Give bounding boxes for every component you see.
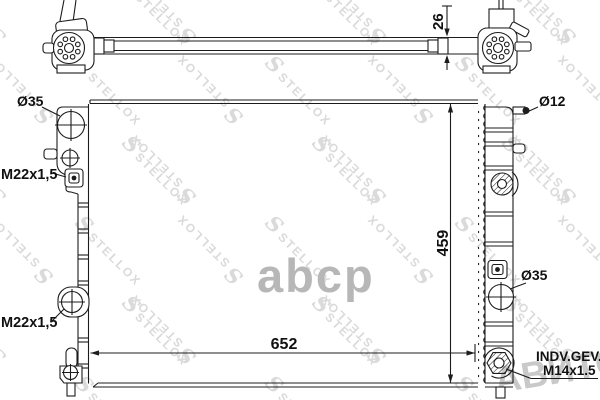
label-vent-diameter: Ø12 bbox=[539, 93, 566, 109]
drain-plug bbox=[485, 348, 514, 378]
label-drain-note-1: INDV.GEV. bbox=[536, 349, 600, 364]
top-view-left-housing bbox=[43, 0, 94, 73]
small-port bbox=[44, 148, 80, 168]
tank-crimp-edge bbox=[478, 105, 486, 383]
right-stub-pipe bbox=[515, 42, 531, 51]
side-stub bbox=[513, 144, 525, 153]
dim-thickness-value: 26 bbox=[430, 13, 447, 30]
dim-height-value: 459 bbox=[435, 230, 452, 257]
technical-drawing: 26 bbox=[0, 0, 600, 400]
threaded-plug bbox=[491, 172, 518, 196]
dim-width-value: 652 bbox=[271, 336, 298, 353]
dim-core-width: 652 bbox=[91, 336, 476, 362]
label-thread-top: M22x1,5 bbox=[1, 167, 57, 183]
left-stub-pipe bbox=[43, 43, 54, 53]
radiator-top-view: 26 bbox=[43, 0, 531, 73]
label-thread-bottom: M22x1,5 bbox=[1, 315, 57, 331]
radiator-front-view: 652 459 Ø35 M22x1,5 M22x1, bbox=[1, 93, 600, 398]
radiator-technical-drawing: SSTELLOXSSTELLOXSSTELLOXSSTELLOXSSTELLOX… bbox=[0, 0, 600, 400]
outlet-port bbox=[486, 282, 516, 312]
left-tank-rungs bbox=[78, 203, 89, 368]
right-tank-rungs bbox=[485, 128, 513, 346]
vent-pipe bbox=[513, 107, 530, 114]
label-drain-note-2: M14x1.5 bbox=[543, 363, 596, 378]
label-inlet-diameter: Ø35 bbox=[17, 93, 44, 109]
thread-boss-top bbox=[65, 169, 83, 187]
square-boss bbox=[488, 261, 507, 279]
bottom-pin bbox=[496, 387, 505, 398]
right-cap bbox=[489, 9, 514, 28]
top-view-right-housing bbox=[478, 0, 531, 73]
bottom-bracket bbox=[60, 348, 82, 396]
inlet-port bbox=[55, 109, 87, 141]
top-view-tube bbox=[94, 38, 478, 55]
right-tank bbox=[478, 104, 530, 398]
dim-core-height: 459 bbox=[435, 104, 453, 383]
left-tank bbox=[44, 104, 89, 396]
thread-boss-bottom bbox=[58, 287, 89, 317]
label-outlet-diameter: Ø35 bbox=[521, 267, 548, 283]
